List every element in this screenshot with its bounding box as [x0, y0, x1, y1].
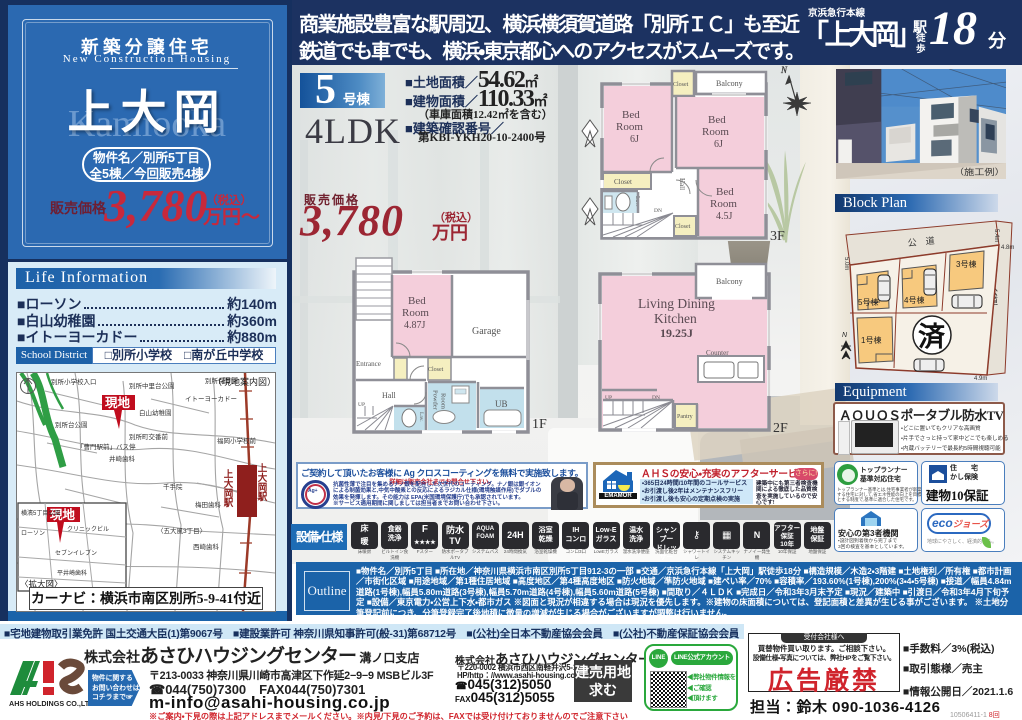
svg-text:4.87J: 4.87J — [404, 320, 426, 331]
svg-text:別所町交番前: 別所町交番前 — [129, 432, 169, 441]
svg-text:現地: 現地 — [105, 395, 131, 410]
svg-text:Hall: Hall — [382, 391, 397, 400]
svg-text:19.25J: 19.25J — [660, 326, 693, 340]
svg-text:Closet: Closet — [673, 82, 689, 88]
svg-text:Lav.: Lav. — [418, 412, 424, 422]
svg-text:4.9m: 4.9m — [974, 376, 987, 381]
svg-text:Kitchen: Kitchen — [654, 311, 697, 326]
svg-text:3号棟: 3号棟 — [956, 259, 976, 269]
svg-text:上大岡駅: 上大岡駅 — [256, 462, 268, 502]
svg-text:4.8m: 4.8m — [1001, 245, 1014, 251]
svg-text:クリニックビル: クリニックビル — [67, 525, 109, 533]
svg-text:3F: 3F — [770, 229, 785, 244]
svg-text:5号棟: 5号棟 — [858, 297, 878, 307]
svg-text:Closet: Closet — [428, 367, 444, 373]
svg-text:AHS HOLDINGS CO.,LTD.: AHS HOLDINGS CO.,LTD. — [9, 699, 88, 708]
svg-text:Room: Room — [616, 121, 643, 133]
svg-text:5.0m: 5.0m — [843, 257, 849, 270]
svg-text:〈五大風3丁目〉: 〈五大風3丁目〉 — [157, 526, 206, 535]
svg-text:井崎歯科: 井崎歯科 — [109, 454, 136, 463]
svg-text:別所中里台公園: 別所中里台公園 — [129, 381, 175, 390]
svg-text:N: N — [780, 65, 788, 75]
svg-text:Bed: Bed — [716, 186, 734, 198]
svg-text:1号棟: 1号棟 — [861, 335, 881, 345]
svg-text:6J: 6J — [630, 134, 639, 145]
svg-text:2F: 2F — [773, 421, 788, 436]
svg-text:4.5J: 4.5J — [716, 211, 733, 222]
svg-text:（現地案内図）: （現地案内図） — [213, 376, 275, 387]
svg-text:Balcony: Balcony — [716, 79, 743, 88]
svg-text:Bed: Bed — [408, 295, 426, 307]
svg-text:1F: 1F — [532, 417, 547, 432]
svg-text:平井崎歯科: 平井崎歯科 — [57, 569, 87, 577]
svg-text:梅田歯科: 梅田歯科 — [195, 500, 222, 509]
svg-text:Room: Room — [710, 198, 737, 210]
svg-text:「曹門駅前」バス停: 「曹門駅前」バス停 — [77, 442, 136, 451]
svg-text:Room: Room — [402, 307, 429, 319]
svg-text:Pantry: Pantry — [677, 414, 693, 420]
svg-text:福岡小学校前: 福岡小学校前 — [217, 436, 257, 445]
svg-text:Closet: Closet — [614, 178, 632, 186]
svg-text:Entrance: Entrance — [356, 360, 381, 368]
svg-text:西崎歯科: 西崎歯科 — [193, 542, 220, 551]
svg-text:ローソン: ローソン — [21, 531, 45, 537]
svg-text:Garage: Garage — [472, 326, 501, 337]
svg-text:Balcony: Balcony — [716, 277, 743, 286]
svg-text:Bed: Bed — [708, 114, 726, 126]
svg-text:Powder: Powder — [432, 390, 439, 411]
svg-text:白山幼稚園: 白山幼稚園 — [139, 408, 172, 417]
svg-text:6J: 6J — [714, 139, 723, 150]
svg-text:Room: Room — [440, 393, 447, 409]
svg-text:Closet: Closet — [675, 224, 691, 230]
svg-text:セブンイレブン: セブンイレブン — [55, 549, 97, 557]
svg-text:イトーヨーカドー: イトーヨーカドー — [185, 395, 237, 403]
svg-text:Bed: Bed — [622, 109, 640, 121]
svg-text:UB: UB — [495, 399, 508, 409]
svg-text:DN: DN — [654, 208, 662, 214]
svg-text:上大岡駅: 上大岡駅 — [222, 468, 234, 508]
svg-text:別所台公園: 別所台公園 — [55, 420, 88, 429]
svg-text:別所小学校入口: 別所小学校入口 — [51, 377, 97, 386]
svg-text:横濱5丁目公園: 横濱5丁目公園 — [21, 509, 60, 517]
svg-text:Hall: Hall — [678, 178, 686, 190]
svg-text:Room: Room — [702, 126, 729, 138]
svg-text:済: 済 — [918, 322, 946, 352]
svg-text:5.4m: 5.4m — [993, 229, 999, 242]
svg-text:（施工例）: （施工例） — [954, 167, 1005, 177]
svg-text:4号棟: 4号棟 — [904, 295, 924, 305]
svg-text:千手院: 千手院 — [163, 482, 183, 491]
svg-text:N: N — [842, 332, 848, 339]
svg-text:Living Dining: Living Dining — [638, 296, 715, 311]
